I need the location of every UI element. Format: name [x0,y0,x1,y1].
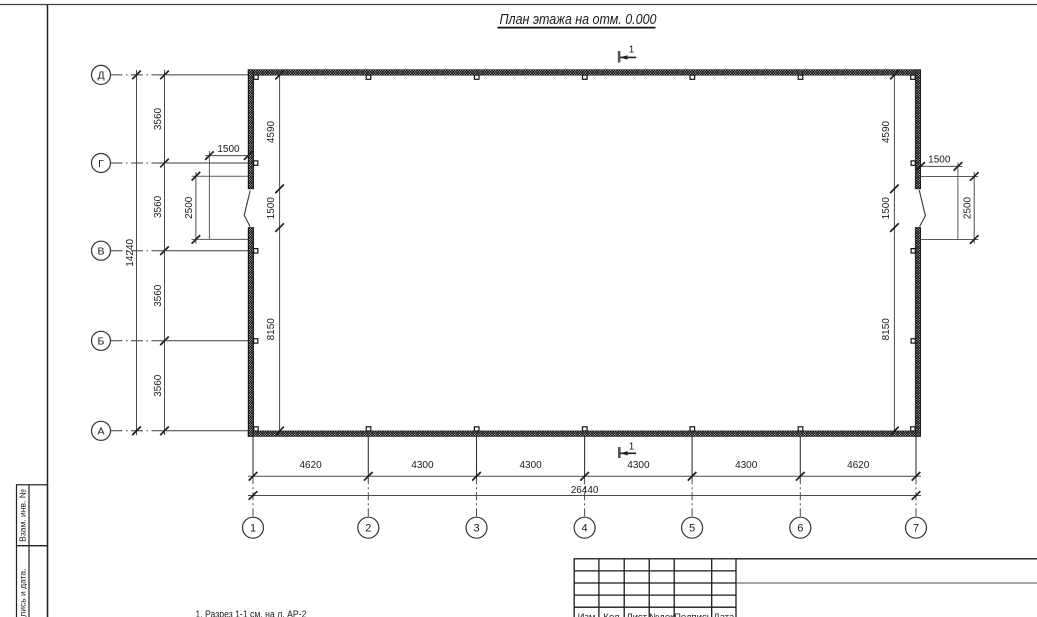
svg-text:3560: 3560 [153,374,164,397]
svg-text:Подпись: Подпись [674,612,712,617]
svg-text:7: 7 [913,523,919,535]
svg-text:4300: 4300 [627,460,650,471]
svg-text:1500: 1500 [266,197,277,220]
svg-text:План этажа на отм. 0.000: План этажа на отм. 0.000 [500,12,657,28]
svg-text:4: 4 [582,523,588,535]
svg-text:Лист: Лист [626,612,647,617]
svg-text:1500: 1500 [217,144,240,155]
svg-text:Кол: Кол [603,612,619,617]
svg-text:2500: 2500 [184,196,195,219]
svg-text:2: 2 [365,523,371,535]
svg-text:4620: 4620 [299,460,322,471]
svg-text:3: 3 [473,523,479,535]
svg-text:1500: 1500 [881,197,892,220]
svg-text:4300: 4300 [735,460,758,471]
svg-text:4300: 4300 [411,460,434,471]
svg-text:26440: 26440 [571,485,599,496]
svg-text:6: 6 [797,523,803,535]
svg-text:1500: 1500 [928,154,951,165]
svg-text:8150: 8150 [881,318,892,341]
svg-text:1: 1 [629,45,635,56]
svg-text:Дата: Дата [713,612,735,617]
svg-text:Взам. инв. №: Взам. инв. № [18,489,28,542]
svg-text:4590: 4590 [881,120,892,143]
svg-text:Д: Д [97,70,104,82]
svg-text:5: 5 [689,523,695,535]
svg-text:1: 1 [629,442,635,453]
svg-text:Г: Г [98,158,104,170]
svg-text:4590: 4590 [266,120,277,143]
svg-text:В: В [97,246,104,258]
svg-text:Б: Б [98,336,105,348]
svg-text:3560: 3560 [153,195,164,218]
svg-text:8150: 8150 [266,318,277,341]
svg-text:4300: 4300 [519,460,542,471]
svg-text:1. Разрез 1-1 см. на л. АР-2: 1. Разрез 1-1 см. на л. АР-2 [195,609,306,617]
svg-text:2500: 2500 [962,196,973,219]
svg-text:4620: 4620 [847,460,870,471]
svg-text:3560: 3560 [153,107,164,130]
svg-text:№док: №док [649,612,675,617]
svg-text:14240: 14240 [125,238,136,266]
svg-text:3560: 3560 [153,284,164,307]
svg-text:Изм: Изм [578,612,596,617]
svg-text:Подпись и дата.: Подпись и дата. [18,569,28,617]
svg-text:А: А [97,426,104,438]
svg-text:1: 1 [250,523,256,535]
